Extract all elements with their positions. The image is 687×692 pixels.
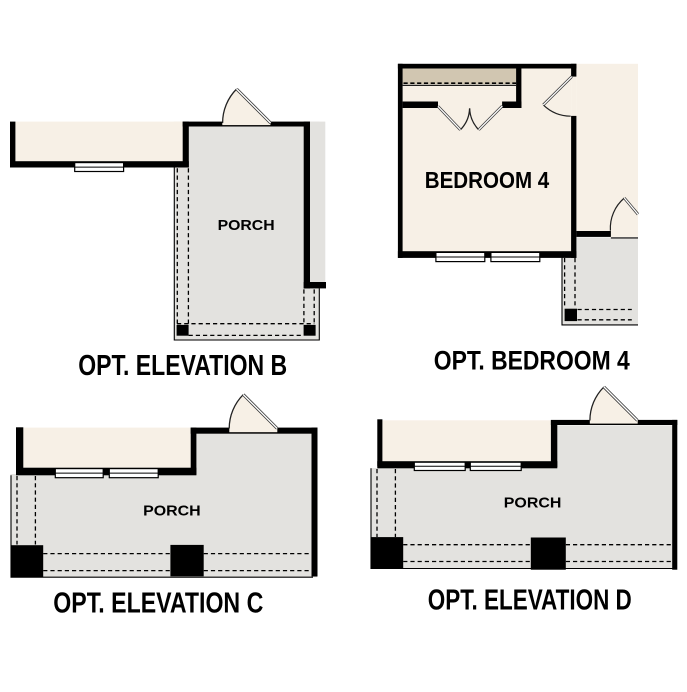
- svg-text:PORCH: PORCH: [504, 494, 562, 511]
- svg-text:OPT. BEDROOM 4: OPT. BEDROOM 4: [434, 346, 630, 376]
- svg-text:OPT. ELEVATION C: OPT. ELEVATION C: [53, 587, 263, 619]
- svg-text:PORCH: PORCH: [218, 217, 275, 234]
- svg-text:OPT. ELEVATION B: OPT. ELEVATION B: [78, 350, 287, 382]
- svg-text:BEDROOM 4: BEDROOM 4: [425, 167, 550, 193]
- svg-text:PORCH: PORCH: [143, 503, 201, 520]
- svg-text:OPT. ELEVATION D: OPT. ELEVATION D: [428, 584, 632, 616]
